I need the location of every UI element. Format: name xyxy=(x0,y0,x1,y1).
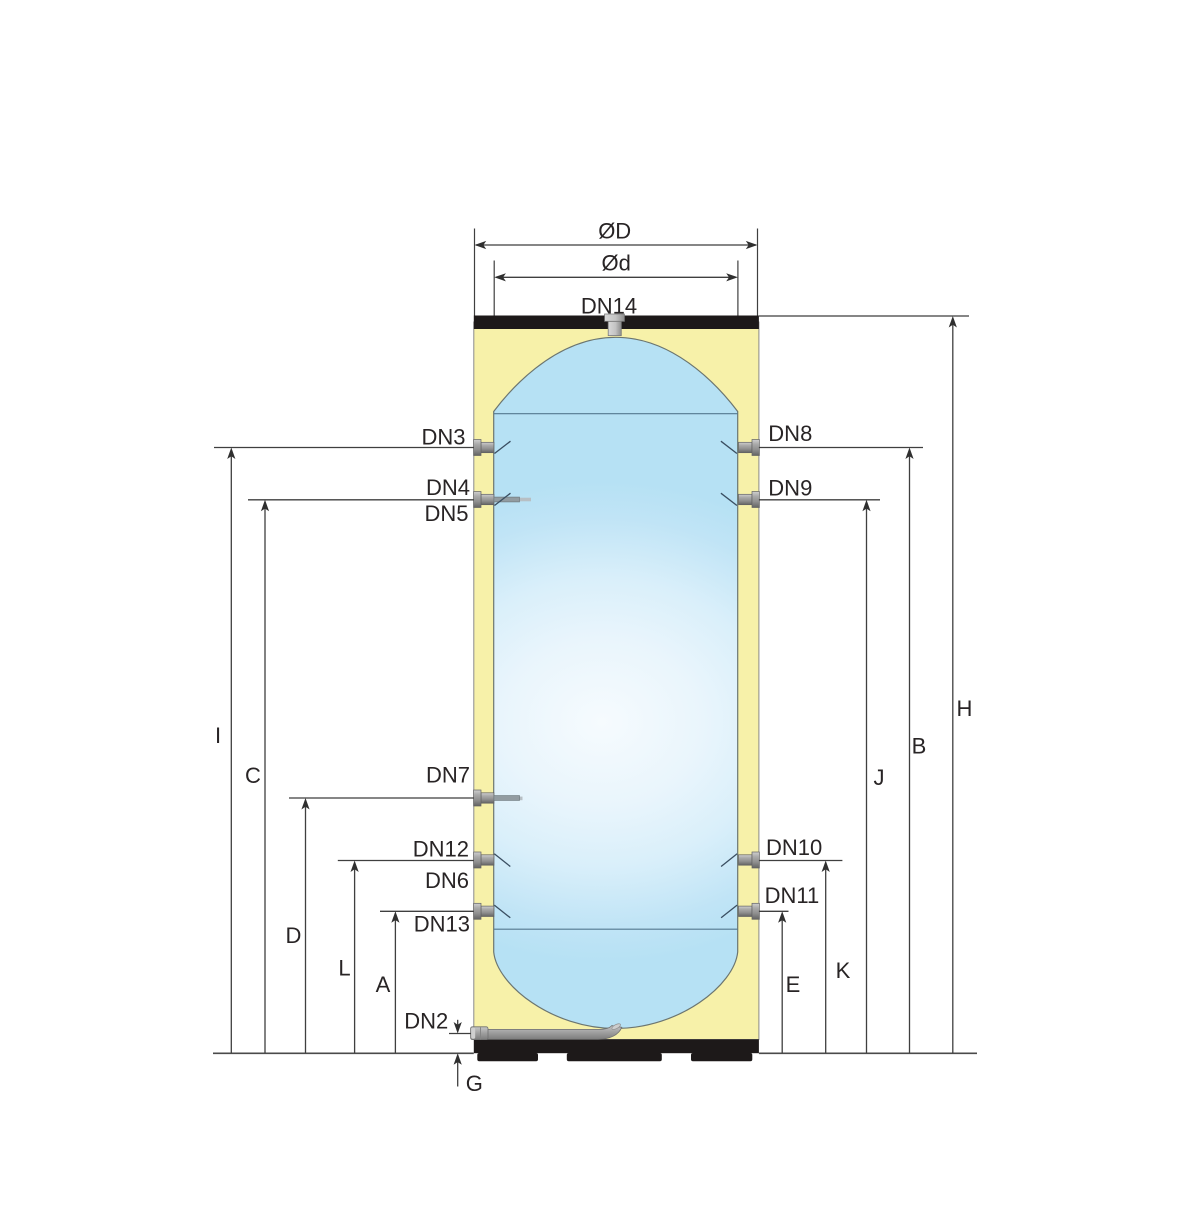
svg-text:DN6: DN6 xyxy=(425,868,469,893)
svg-text:B: B xyxy=(912,734,927,759)
svg-text:DN3: DN3 xyxy=(421,425,465,450)
svg-text:DN12: DN12 xyxy=(413,837,469,862)
svg-text:A: A xyxy=(376,972,391,997)
svg-text:DN4: DN4 xyxy=(426,475,470,500)
svg-text:D: D xyxy=(286,923,302,948)
svg-text:K: K xyxy=(836,958,851,983)
svg-text:DN10: DN10 xyxy=(766,835,822,860)
svg-text:J: J xyxy=(874,765,885,790)
svg-text:C: C xyxy=(245,763,261,788)
svg-text:I: I xyxy=(215,723,221,748)
svg-text:L: L xyxy=(338,955,350,980)
svg-text:DN5: DN5 xyxy=(424,501,468,526)
svg-text:G: G xyxy=(466,1071,483,1096)
svg-text:DN14: DN14 xyxy=(581,293,637,318)
svg-text:DN8: DN8 xyxy=(768,421,812,446)
svg-text:DN9: DN9 xyxy=(768,476,812,501)
svg-text:ØD: ØD xyxy=(598,219,631,244)
svg-text:E: E xyxy=(786,972,801,997)
svg-text:H: H xyxy=(957,696,973,721)
svg-text:DN2: DN2 xyxy=(404,1009,448,1034)
svg-text:Ød: Ød xyxy=(602,250,631,275)
svg-text:DN7: DN7 xyxy=(426,763,470,788)
svg-text:DN11: DN11 xyxy=(765,883,820,908)
svg-text:DN13: DN13 xyxy=(414,912,470,937)
